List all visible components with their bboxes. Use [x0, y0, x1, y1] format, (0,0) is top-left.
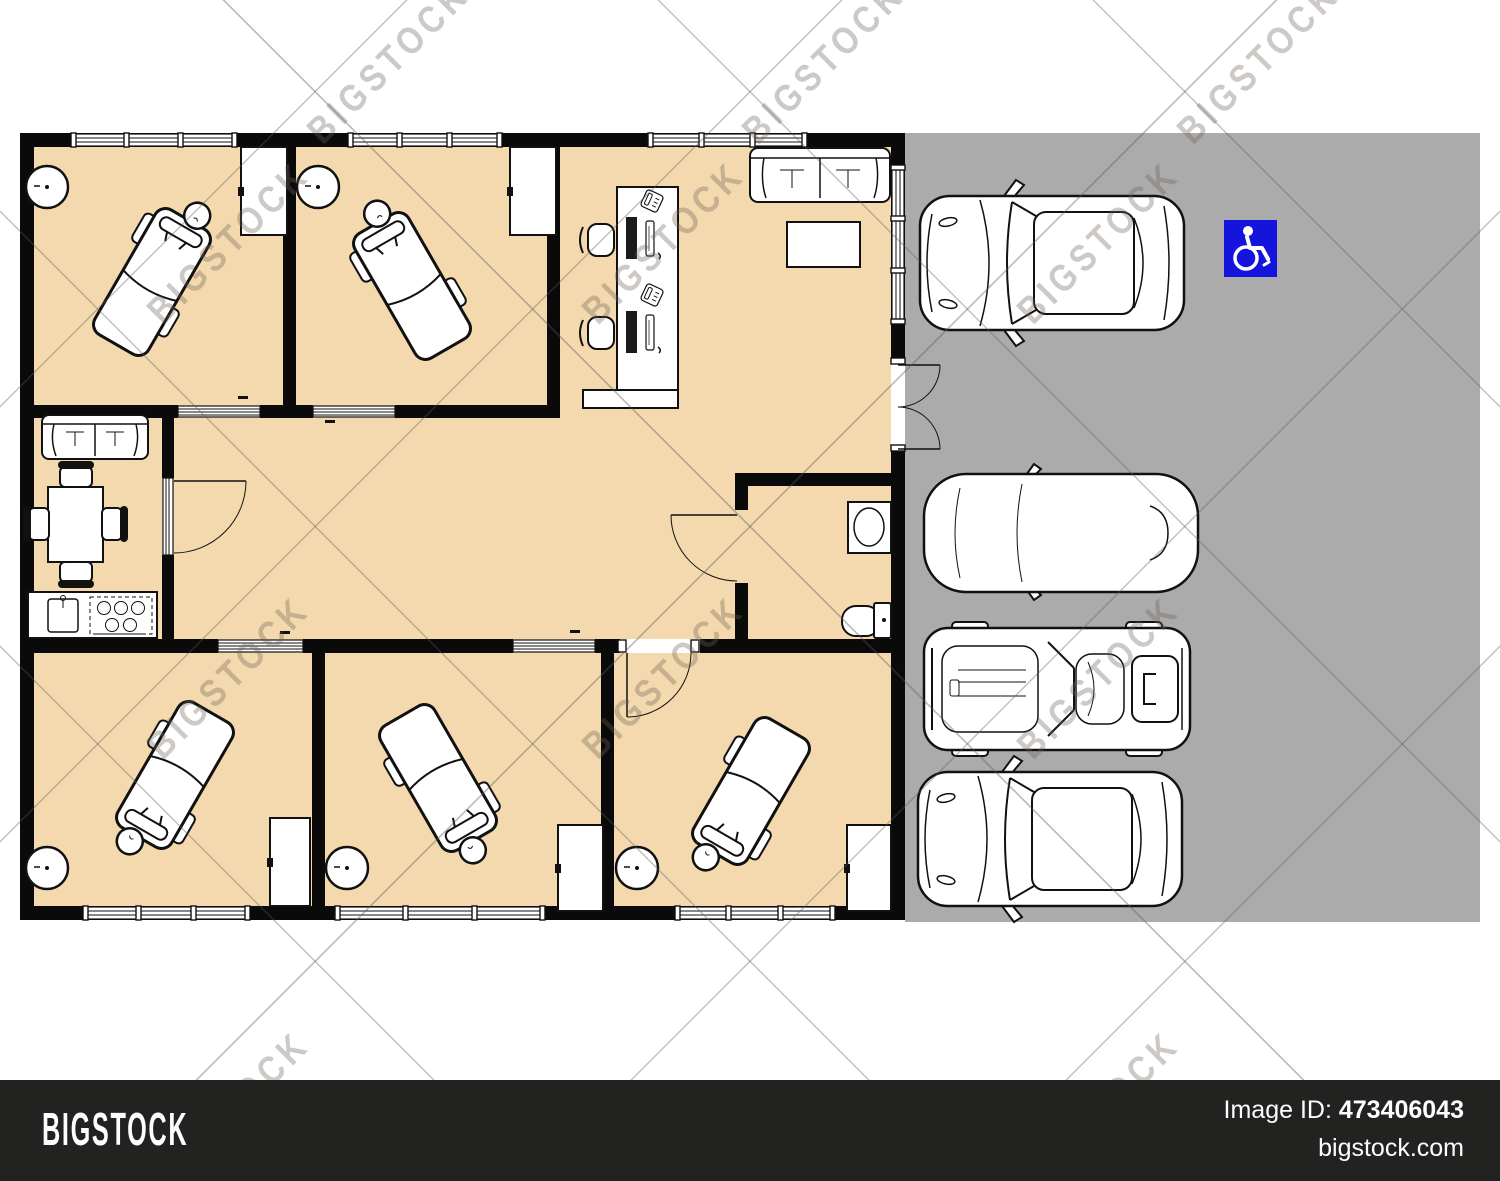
dining-chair	[23, 506, 49, 542]
image-id-value: 473406043	[1339, 1096, 1464, 1124]
car-classic	[924, 622, 1190, 756]
footer-bar: BIGSTOCK Image ID: 473406043 bigstock.co…	[0, 1080, 1500, 1181]
corner-sink	[616, 847, 658, 889]
corner-sink	[297, 166, 339, 208]
wash-basin	[848, 502, 891, 553]
dining-chair	[58, 562, 94, 588]
window	[83, 906, 250, 920]
corner-sink	[26, 847, 68, 889]
window	[335, 906, 545, 920]
image-id: Image ID: 473406043	[1224, 1096, 1464, 1125]
window	[348, 133, 502, 147]
window	[71, 133, 237, 147]
site-link[interactable]: bigstock.com	[1224, 1134, 1464, 1163]
coffee-table	[787, 222, 860, 267]
corner-sink	[26, 166, 68, 208]
cabinet	[555, 825, 603, 911]
dining-chair	[102, 506, 128, 542]
bigstock-logo: BIGSTOCK	[42, 1101, 188, 1155]
cabinet	[844, 825, 891, 911]
stock-image-preview: BIGSTOCK BIGSTOCK BIGSTOCK BIGSTOCK BIGS…	[0, 0, 1500, 1181]
toilet	[842, 603, 891, 638]
cabinet	[507, 147, 556, 235]
car-suv	[918, 756, 1182, 922]
car-hatchback	[924, 464, 1198, 600]
dining-table	[48, 487, 103, 562]
cabinet	[267, 818, 310, 906]
corner-sink	[326, 847, 368, 889]
cars	[918, 180, 1198, 922]
kitchen-counter	[28, 592, 157, 638]
floor-plan-drawing	[0, 0, 1500, 1080]
window	[675, 906, 835, 920]
cabinet	[238, 147, 287, 235]
sofa	[42, 415, 148, 459]
car-suv	[920, 180, 1184, 346]
image-id-label: Image ID:	[1224, 1096, 1332, 1124]
dining-chair	[58, 461, 94, 487]
accessible-parking-sign	[1224, 220, 1277, 277]
sofa	[750, 148, 890, 202]
window	[891, 165, 905, 324]
window	[648, 133, 807, 147]
